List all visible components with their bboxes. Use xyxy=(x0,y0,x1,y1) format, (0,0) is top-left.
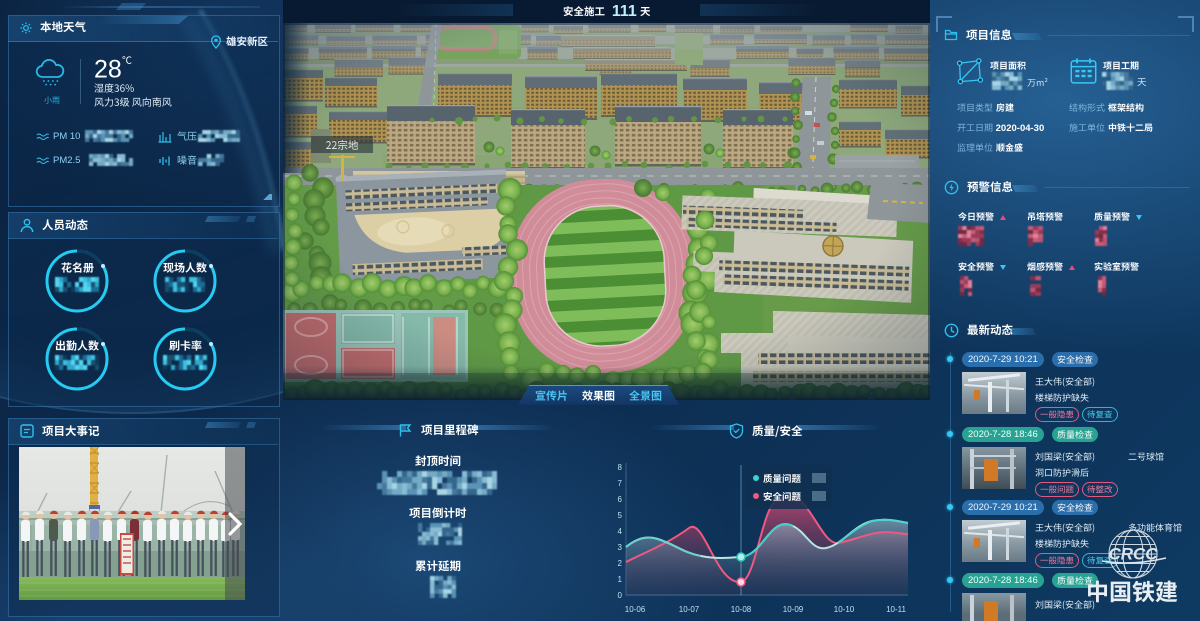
svg-text:7: 7 xyxy=(618,479,623,488)
svg-text:1: 1 xyxy=(618,575,623,584)
svg-text:10-08: 10-08 xyxy=(731,605,752,614)
svg-text:8: 8 xyxy=(618,463,623,472)
svg-text:10-11: 10-11 xyxy=(886,605,906,614)
svg-text:0: 0 xyxy=(618,591,623,600)
svg-text:10-07: 10-07 xyxy=(679,605,700,614)
svg-text:10-09: 10-09 xyxy=(783,605,804,614)
svg-text:3: 3 xyxy=(618,543,623,552)
svg-text:2: 2 xyxy=(618,559,623,568)
svg-text:6: 6 xyxy=(618,495,623,504)
svg-text:10-10: 10-10 xyxy=(834,605,855,614)
svg-text:10-06: 10-06 xyxy=(625,605,646,614)
svg-text:4: 4 xyxy=(618,527,623,536)
svg-text:5: 5 xyxy=(618,511,623,520)
